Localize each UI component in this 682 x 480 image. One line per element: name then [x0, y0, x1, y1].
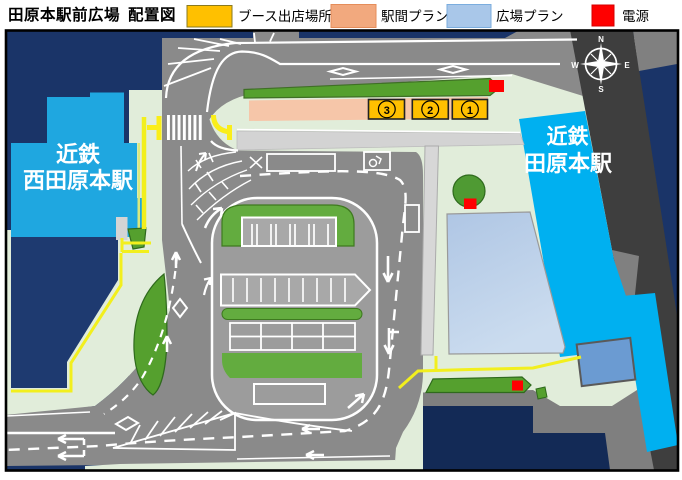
svg-text:近鉄: 近鉄 — [547, 125, 589, 149]
svg-text:田原本駅前広場: 田原本駅前広場 — [8, 5, 120, 24]
svg-text:E: E — [624, 61, 630, 70]
svg-text:ブース出店場所: ブース出店場所 — [238, 8, 332, 24]
svg-text:駅間プラン: 駅間プラン — [381, 9, 449, 24]
svg-text:W: W — [571, 61, 579, 70]
svg-text:西田原本駅: 西田原本駅 — [23, 168, 133, 193]
svg-text:3: 3 — [384, 105, 390, 117]
svg-text:電源: 電源 — [622, 9, 650, 24]
svg-text:田原本駅: 田原本駅 — [524, 151, 612, 176]
svg-text:2: 2 — [427, 105, 433, 117]
svg-text:配置図: 配置図 — [128, 6, 176, 24]
svg-text:広場プラン: 広場プラン — [496, 9, 564, 24]
svg-text:N: N — [598, 35, 604, 44]
svg-text:S: S — [598, 85, 604, 94]
svg-text:近鉄: 近鉄 — [56, 142, 100, 167]
svg-text:1: 1 — [467, 105, 473, 117]
